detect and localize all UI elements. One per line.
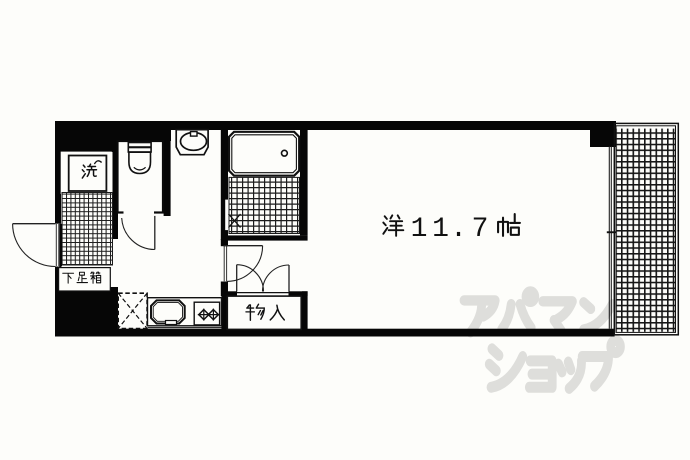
- svg-text:.: .: [450, 214, 467, 245]
- svg-text:7: 7: [472, 214, 489, 245]
- svg-text:1: 1: [432, 214, 449, 245]
- svg-text:1: 1: [411, 214, 428, 245]
